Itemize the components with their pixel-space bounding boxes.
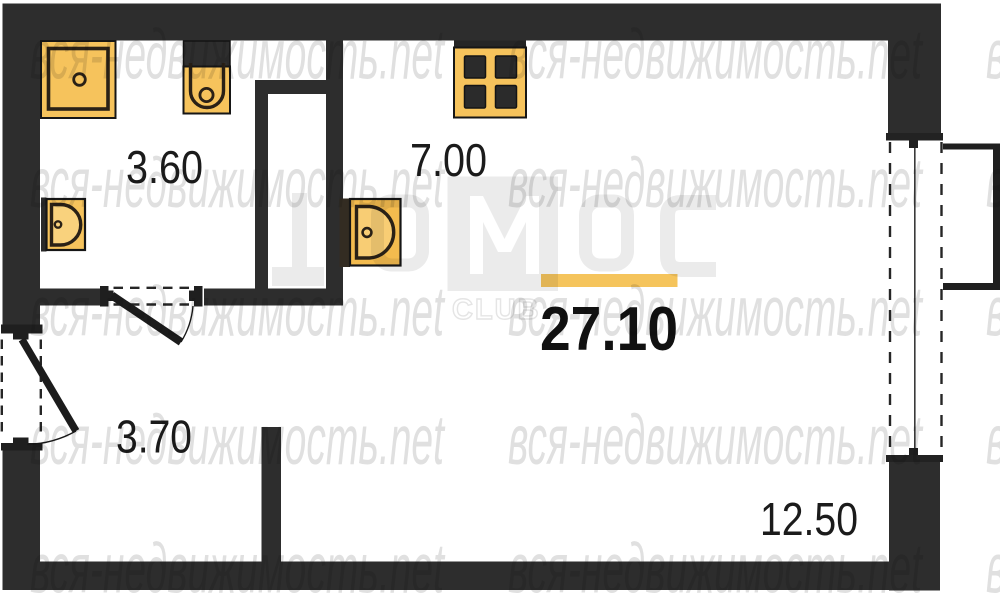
svg-text:вся-недвижимость.net: вся-недвижимость.net xyxy=(986,272,1000,351)
svg-text:вся-недвижимость.net: вся-недвижимость.net xyxy=(986,15,1000,94)
svg-text:вся-недвижимость.net: вся-недвижимость.net xyxy=(986,400,1000,479)
svg-text:вся-недвижимость.net: вся-недвижимость.net xyxy=(30,15,446,94)
svg-text:вся-недвижимость.net: вся-недвижимость.net xyxy=(508,272,924,351)
svg-text:вся-недвижимость.net: вся-недвижимость.net xyxy=(508,529,924,596)
svg-text:вся-недвижимость.net: вся-недвижимость.net xyxy=(986,143,1000,222)
svg-text:вся-недвижимость.net: вся-недвижимость.net xyxy=(30,400,446,479)
svg-text:вся-недвижимость.net: вся-недвижимость.net xyxy=(986,529,1000,596)
svg-text:вся-недвижимость.net: вся-недвижимость.net xyxy=(508,15,924,94)
svg-text:вся-недвижимость.net: вся-недвижимость.net xyxy=(30,272,446,351)
svg-text:вся-недвижимость.net: вся-недвижимость.net xyxy=(30,143,446,222)
svg-text:вся-недвижимость.net: вся-недвижимость.net xyxy=(508,143,924,222)
svg-text:вся-недвижимость.net: вся-недвижимость.net xyxy=(30,529,446,596)
svg-text:вся-недвижимость.net: вся-недвижимость.net xyxy=(508,400,924,479)
